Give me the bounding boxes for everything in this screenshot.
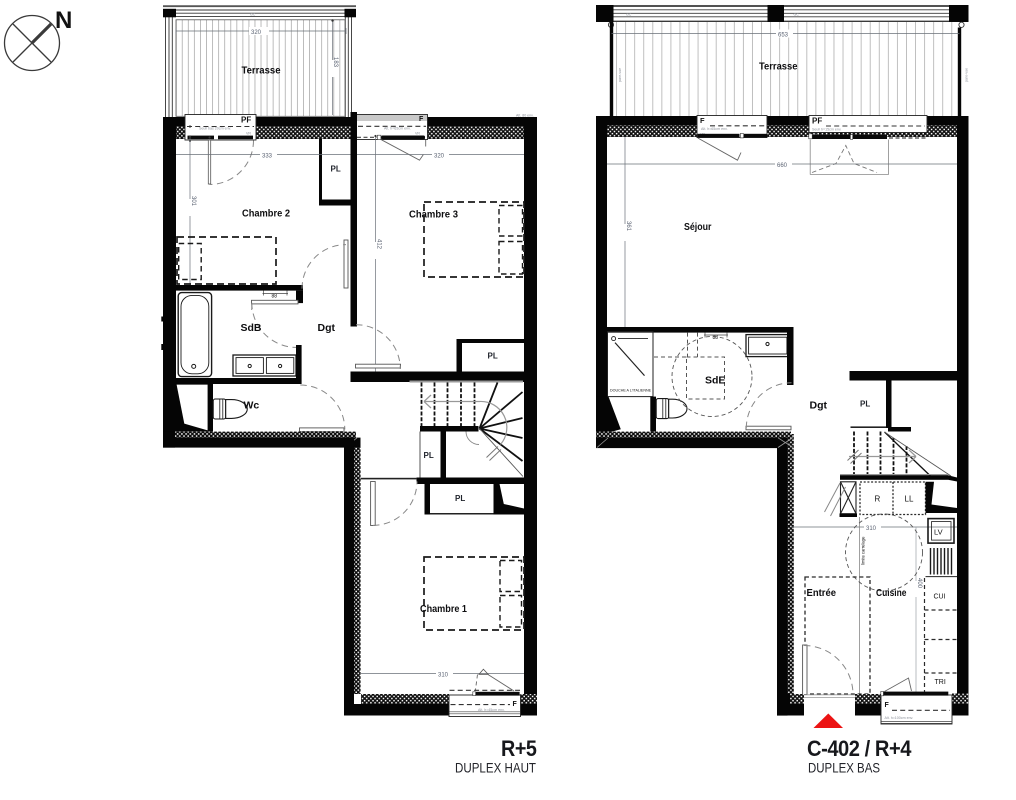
svg-text:Chambre 2: Chambre 2: [242, 208, 290, 220]
svg-text:310: 310: [866, 526, 877, 532]
svg-text:R: R: [875, 495, 881, 504]
svg-text:PL: PL: [455, 494, 465, 503]
svg-text:Chambre 1: Chambre 1: [420, 603, 467, 615]
svg-text:LL: LL: [905, 495, 914, 504]
svg-text:361: 361: [625, 221, 631, 232]
svg-text:301: 301: [190, 196, 196, 207]
svg-text:Cuisine: Cuisine: [876, 587, 907, 599]
svg-text:pare-vue: pare-vue: [618, 68, 622, 82]
svg-text:Wc: Wc: [244, 400, 260, 412]
svg-text:F: F: [700, 116, 705, 125]
svg-text:DOUCHE A L'ITALIENNE: DOUCHE A L'ITALIENNE: [610, 389, 652, 393]
svg-text:C-402 / R+4: C-402 / R+4: [807, 736, 912, 761]
svg-text:320: 320: [251, 30, 262, 36]
svg-text:Alt. h=65cm env.: Alt. h=65cm env.: [701, 127, 728, 131]
svg-text:Alt. 80 env.: Alt. 80 env.: [516, 114, 534, 118]
svg-text:GC: GC: [626, 13, 632, 17]
svg-text:Entrée: Entrée: [807, 587, 837, 599]
svg-text:PF: PF: [241, 116, 251, 125]
svg-text:LV: LV: [934, 528, 943, 537]
svg-text:PL: PL: [488, 352, 498, 361]
svg-text:310: 310: [438, 673, 449, 679]
svg-text:183: 183: [332, 57, 338, 68]
svg-text:R+5: R+5: [501, 736, 537, 761]
svg-text:VR: VR: [246, 132, 251, 136]
svg-text:Alt. h=65cm env.: Alt. h=65cm env.: [384, 127, 411, 131]
svg-text:PL: PL: [860, 400, 870, 409]
svg-text:limite carrelage: limite carrelage: [861, 536, 866, 565]
svg-text:TRI: TRI: [935, 679, 946, 686]
svg-text:PL: PL: [331, 165, 341, 174]
svg-text:F: F: [513, 701, 518, 708]
svg-text:Chambre 3: Chambre 3: [409, 209, 458, 221]
svg-text:PL: PL: [424, 451, 434, 460]
svg-text:320: 320: [434, 154, 445, 160]
svg-text:Terrasse: Terrasse: [759, 61, 798, 73]
svg-text:400: 400: [916, 578, 922, 589]
svg-text:660: 660: [777, 163, 788, 169]
svg-text:DUPLEX HAUT: DUPLEX HAUT: [455, 761, 536, 776]
svg-text:Seuil h=15cm env.: Seuil h=15cm env.: [812, 128, 841, 132]
svg-text:SdE: SdE: [705, 375, 725, 387]
svg-text:F: F: [885, 702, 890, 709]
svg-text:653: 653: [778, 33, 789, 39]
svg-text:Dgt: Dgt: [810, 400, 828, 412]
svg-text:Dgt: Dgt: [318, 322, 336, 334]
svg-text:333: 333: [262, 154, 273, 160]
svg-text:VR: VR: [415, 132, 420, 136]
svg-text:Terrasse: Terrasse: [242, 65, 281, 77]
svg-text:SdB: SdB: [241, 322, 262, 334]
svg-text:GC: GC: [794, 13, 800, 17]
svg-text:88: 88: [713, 335, 719, 341]
svg-text:PF: PF: [812, 117, 822, 126]
svg-text:N: N: [55, 7, 72, 34]
svg-text:CUI: CUI: [934, 594, 946, 601]
svg-text:pare-vue: pare-vue: [965, 68, 969, 82]
svg-text:Seuil bas 20cm env.: Seuil bas 20cm env.: [199, 127, 231, 131]
svg-text:Alt. h=45cm env.: Alt. h=45cm env.: [478, 708, 505, 712]
svg-text:412: 412: [376, 239, 382, 250]
svg-text:Alt. h=100cm env.: Alt. h=100cm env.: [885, 716, 914, 720]
svg-text:GC: GC: [250, 13, 256, 17]
svg-text:F: F: [419, 116, 424, 123]
svg-text:88: 88: [272, 294, 278, 300]
svg-text:DUPLEX BAS: DUPLEX BAS: [808, 761, 880, 776]
svg-text:Séjour: Séjour: [684, 221, 712, 233]
